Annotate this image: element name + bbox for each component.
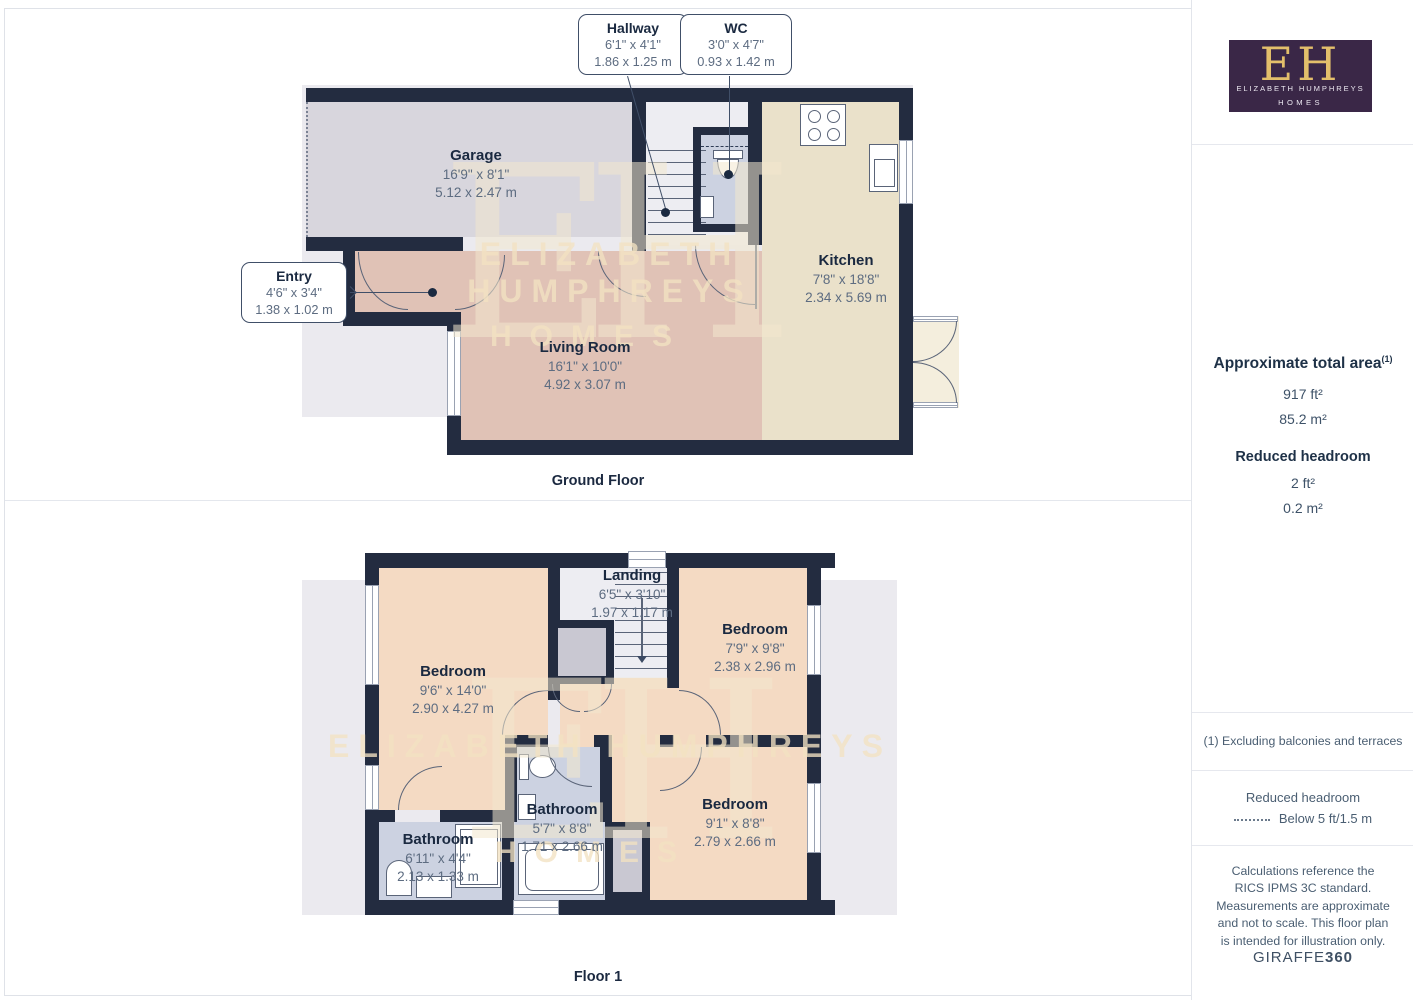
sidebar-divider	[1192, 144, 1413, 145]
provider-suffix: 360	[1325, 949, 1353, 966]
floorplan-page: EH ELIZABETH HUMPHREYS HOMES Garage 16'9…	[0, 0, 1413, 1000]
info-sidebar: EH ELIZABETH HUMPHREYS HOMES Approximate…	[1191, 0, 1413, 1000]
provider-name: GIRAFFE	[1253, 949, 1325, 966]
reduced-headroom-line-sample	[1234, 819, 1270, 821]
legend-label: Below 5 ft/1.5 m	[1279, 811, 1372, 826]
toilet-tank	[713, 150, 743, 159]
bedroom1-room	[379, 735, 505, 810]
legend-row: Below 5 ft/1.5 m	[1192, 811, 1413, 826]
hob-burner	[827, 110, 840, 123]
wall	[306, 237, 463, 251]
reduced-headroom-title: Reduced headroom	[1192, 449, 1413, 465]
room-label-bedroom3: Bedroom 9'1" x 8'8" 2.79 x 2.66 m	[655, 795, 815, 850]
kitchen-sink-counter	[869, 144, 898, 192]
reduced-headroom-line	[701, 146, 748, 147]
ground-floor-caption: Ground Floor	[518, 473, 678, 489]
sidebar-divider	[1192, 712, 1413, 713]
room-label-bathroom-main: Bathroom 5'7" x 8'8" 1.71 x 2.66 m	[492, 800, 632, 855]
wall	[706, 735, 807, 747]
wall	[365, 900, 835, 915]
wall	[594, 735, 612, 747]
room-label-living-room: Living Room 16'1" x 10'0" 4.92 x 3.07 m	[505, 338, 665, 393]
stairs-arrow-head	[637, 656, 647, 663]
room-label-garage: Garage 16'9" x 8'1" 5.12 x 2.47 m	[396, 146, 556, 201]
window	[365, 765, 379, 810]
room-label-landing: Landing 6'5" x 3'10" 1.97 x 1.17 m	[552, 566, 712, 621]
reduced-headroom-imperial: 2 ft²	[1192, 475, 1413, 491]
provider-logo: GIRAFFE360	[1192, 949, 1413, 966]
wall	[306, 88, 913, 102]
wall	[660, 735, 674, 747]
footnote-marker: (1)	[1381, 354, 1392, 364]
wall	[505, 735, 548, 747]
hob	[800, 104, 846, 146]
door-leaf	[755, 245, 757, 309]
room-label-bathroom-small: Bathroom 6'11" x 4'4" 2.13 x 1.33 m	[368, 830, 508, 885]
floor1-caption: Floor 1	[518, 969, 678, 985]
room-label-bedroom2: Bedroom 7'9" x 9'8" 2.38 x 2.96 m	[675, 620, 835, 675]
total-area-imperial: 917 ft²	[1192, 386, 1413, 402]
legend-title: Reduced headroom	[1192, 790, 1413, 805]
total-area-title: Approximate total area(1)	[1192, 354, 1413, 373]
room-label-kitchen: Kitchen 7'8" x 18'8" 2.34 x 5.69 m	[776, 251, 916, 306]
total-area-metric: 85.2 m²	[1192, 411, 1413, 427]
floor-divider	[5, 500, 1191, 501]
sidebar-divider	[1192, 770, 1413, 771]
reduced-headroom-metric: 0.2 m²	[1192, 500, 1413, 516]
brand-name: ELIZABETH HUMPHREYS	[1229, 84, 1372, 93]
window	[513, 900, 559, 915]
disclaimer: Calculations reference the RICS IPMS 3C …	[1192, 863, 1413, 950]
callout-leader	[350, 292, 432, 293]
callout-leader	[729, 76, 730, 172]
hob-burner	[827, 128, 840, 141]
closet-fill	[558, 628, 606, 676]
callout-wc: WC 3'0" x 4'7" 0.93 x 1.42 m	[680, 14, 792, 75]
brand-homes: HOMES	[1229, 98, 1372, 107]
room-label-bedroom1: Bedroom 9'6" x 14'0" 2.90 x 4.27 m	[373, 662, 533, 717]
window	[899, 140, 913, 204]
sink-basin	[874, 159, 895, 187]
callout-entry: Entry 4'6" x 3'4" 1.38 x 1.02 m	[241, 262, 347, 323]
wall	[632, 102, 646, 251]
callout-dot	[428, 288, 437, 297]
wall	[379, 810, 395, 822]
area-footnote: (1) Excluding balconies and terraces	[1192, 734, 1413, 748]
wall	[693, 224, 762, 232]
callout-dot	[661, 208, 670, 217]
wall	[447, 440, 913, 455]
sidebar-divider	[1192, 845, 1413, 846]
hob-burner	[808, 128, 821, 141]
hob-burner	[808, 110, 821, 123]
brand-monogram: EH	[1229, 41, 1372, 87]
callout-dot	[724, 170, 733, 179]
window	[447, 331, 461, 416]
total-area-block: Approximate total area(1) 917 ft² 85.2 m…	[1192, 354, 1413, 516]
callout-hallway: Hallway 6'1" x 4'1" 1.86 x 1.25 m	[578, 14, 688, 75]
garage-door-dotted	[306, 102, 308, 237]
toilet-tank	[519, 754, 529, 780]
wall	[343, 312, 461, 326]
sink	[700, 196, 714, 218]
brand-logo: EH ELIZABETH HUMPHREYS HOMES	[1229, 40, 1372, 112]
wall	[693, 127, 762, 135]
